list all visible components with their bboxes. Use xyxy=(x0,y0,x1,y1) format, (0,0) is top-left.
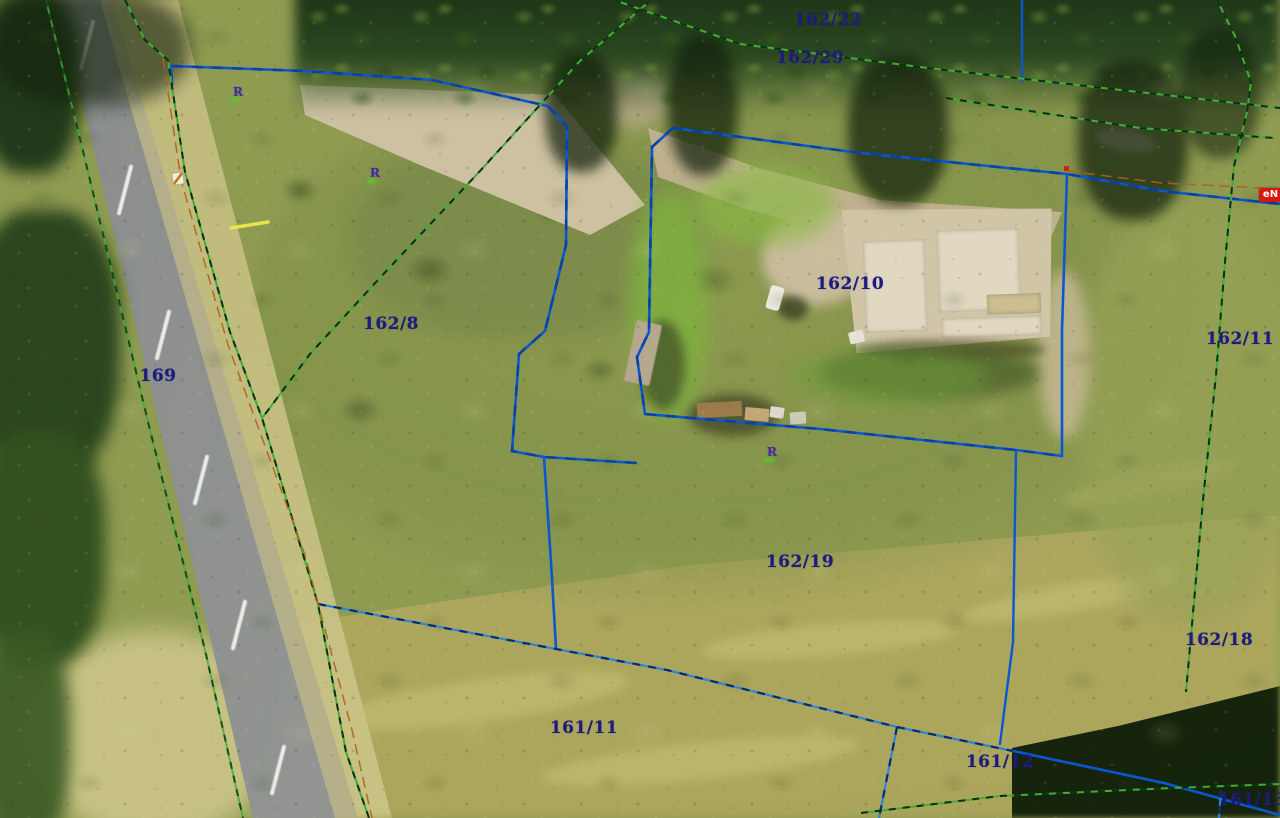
boundary-lines-solid-blue xyxy=(171,0,1280,815)
yellow-highlight-segment xyxy=(231,222,268,228)
utility-lines-orange xyxy=(163,58,1280,818)
boundary-line xyxy=(1000,450,1016,744)
boundary-lines-dashed-green xyxy=(46,0,1280,818)
boundary-line-dashed xyxy=(879,727,897,818)
red-junction-point xyxy=(1064,166,1069,171)
boundary-line-dashed xyxy=(318,604,1013,751)
dashed-blue-dark-segments xyxy=(318,604,1221,818)
map-canvas[interactable]: eN RRR 162/22162/29162/8162/10162/111691… xyxy=(0,0,1280,818)
en-badge: eN xyxy=(1259,188,1280,202)
boundary-lines-dashed-blue xyxy=(318,604,1221,818)
boundary-line xyxy=(1013,751,1280,815)
roadside-sign-marker xyxy=(171,171,185,186)
boundary-line xyxy=(637,128,1062,456)
cadastral-overlay xyxy=(0,0,1280,818)
dashed-green-dark-segments xyxy=(46,0,1280,818)
solid-line-dash-texture xyxy=(171,66,1280,463)
boundary-line xyxy=(544,457,556,648)
dashed-green-base xyxy=(46,0,1280,818)
boundary-line xyxy=(1062,175,1067,456)
